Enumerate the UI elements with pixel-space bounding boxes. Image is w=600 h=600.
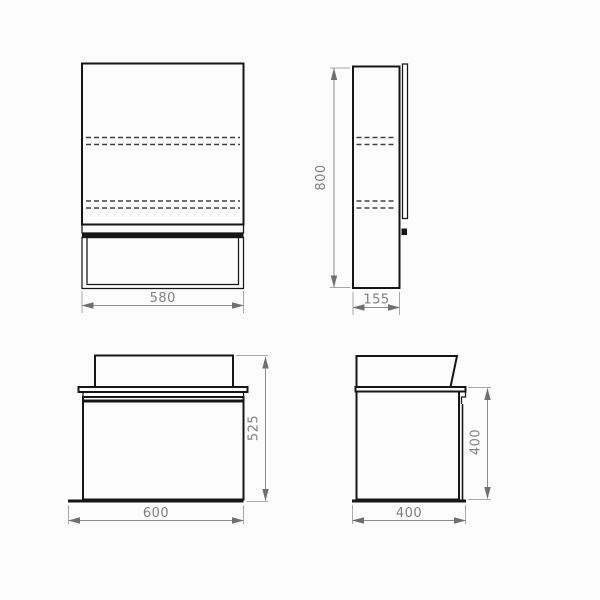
dimension-mirror-width: 580: [82, 291, 244, 313]
dimension-mirror-height: 800: [314, 68, 351, 288]
cabinet-body-outline: [357, 392, 460, 500]
mirror-cabinet-front-view: 580: [82, 64, 244, 314]
basin-profile-outline: [357, 356, 458, 387]
open-shelf-inner: [87, 238, 239, 285]
cabinet-base-line: [352, 500, 466, 503]
dimension-label-580: 580: [150, 291, 176, 306]
dimension-label-400-vertical: 400: [469, 429, 484, 455]
cabinet-body-outline: [353, 67, 400, 289]
mirror-cabinet-side-view: 800 155: [314, 64, 408, 315]
technical-drawing-canvas: 580 800 155: [0, 0, 600, 600]
cabinet-body-outline: [83, 397, 244, 500]
dimension-label-155: 155: [363, 293, 389, 308]
dimension-vanity-height: 525: [236, 356, 268, 502]
dimension-mirror-depth: 155: [353, 292, 400, 315]
mirror-door-panel: [403, 64, 408, 219]
dimension-vanity-side-height: 400: [468, 388, 491, 500]
counter-edge-notch: [462, 392, 466, 405]
vanity-unit-front-view: 600 525: [68, 356, 268, 525]
drawer-gap-line: [83, 400, 244, 403]
cabinet-trim-strip: [82, 225, 244, 234]
cabinet-base-line: [68, 500, 244, 503]
dimension-label-400-horizontal: 400: [396, 506, 422, 521]
open-shelf-outer: [82, 238, 244, 289]
cabinet-thick-rail: [82, 233, 244, 238]
dimension-label-525: 525: [247, 415, 262, 441]
dimension-label-800: 800: [314, 164, 329, 190]
dimension-label-600: 600: [143, 506, 169, 521]
dimension-vanity-depth: 400: [353, 505, 466, 524]
countertop-outline: [79, 387, 248, 392]
backsplash-outline: [95, 356, 233, 388]
door-hinge-knob: [402, 229, 408, 236]
dimension-vanity-width: 600: [69, 505, 244, 524]
vanity-unit-side-view: 400 400: [352, 356, 491, 524]
